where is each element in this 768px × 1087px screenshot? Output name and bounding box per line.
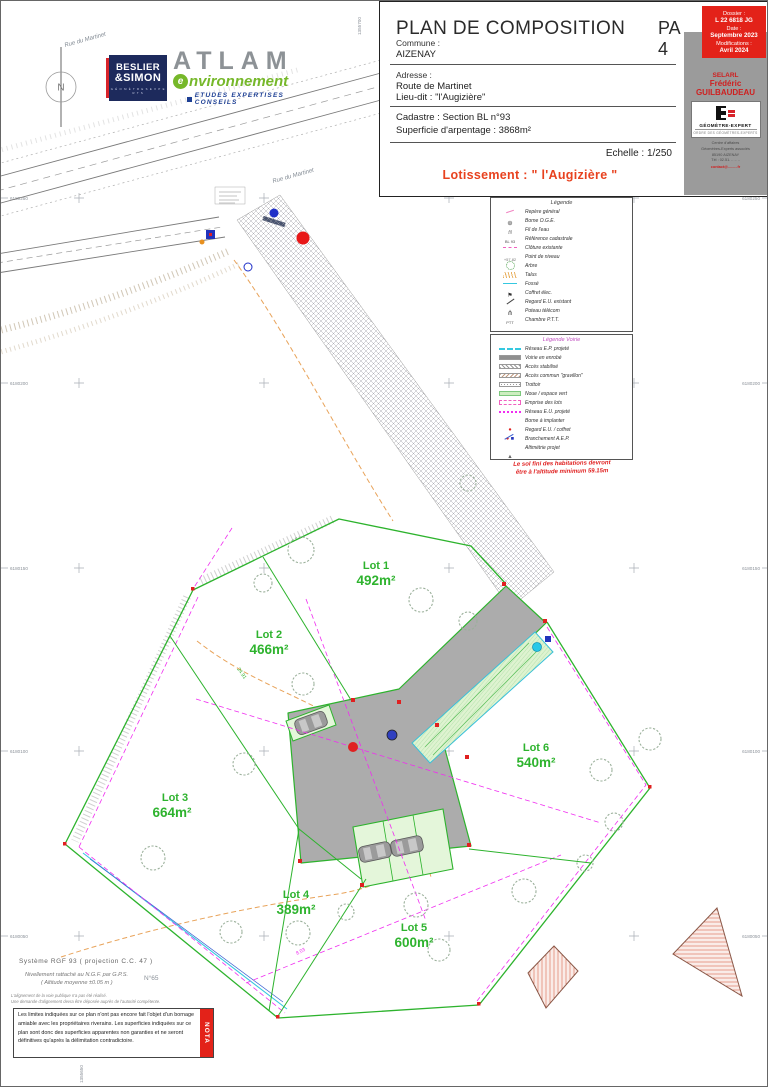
legend-item-label: Regard E.U. / coffret: [525, 427, 571, 433]
nota-band: NOTA: [200, 1009, 213, 1057]
tree-icon: [639, 728, 661, 750]
legend-item-label: Clôture existante: [525, 245, 563, 251]
legend-item-label: Réseau E.U. projeté: [525, 409, 570, 415]
measurement-label: 8.03: [295, 947, 307, 957]
legend-item: Regard E.U. / coffret: [491, 425, 632, 434]
legend-item-label: Référence cadastrale: [525, 236, 573, 242]
nota-label: NOTA: [203, 1022, 210, 1044]
tree-icon: [220, 921, 242, 943]
dossier-box: Dossier : L 22 6818 JG Date : Septembre …: [702, 6, 766, 58]
legend-item: Accès commun "gravillon": [491, 371, 632, 380]
leveling-note-detail: ( Altitude moyenne ±0.05 m ): [41, 980, 113, 986]
legend-item-label: Regard E.U. existant: [525, 299, 571, 305]
atlam-tagline: ETUDES EXPERTISES CONSEILS: [195, 92, 323, 106]
legend-swatch-icon: [499, 391, 521, 396]
legend-item: Référence cadastrale: [491, 234, 632, 243]
divider: [390, 106, 676, 107]
nota-box: Les limites indiquées sur ce plan n'ont …: [13, 1008, 214, 1058]
legend-item: Coffret élec.: [491, 288, 632, 297]
levels-table: [215, 187, 245, 204]
legend-item-label: Accès stabilisé: [525, 364, 558, 370]
superficie-value: Superficie d'arpentage : 3868m²: [396, 125, 531, 136]
lot-label: Lot 4: [283, 889, 310, 901]
nota-text: Les limites indiquées sur ce plan n'ont …: [14, 1009, 200, 1057]
legend-item-label: Voirie en enrobé: [525, 355, 562, 361]
legend-item-label: Trottoir: [525, 382, 540, 388]
svg-text:6180100: 6180100: [742, 749, 760, 754]
tree-icon: [286, 921, 310, 945]
lot-label: Lot 2: [256, 629, 282, 641]
legend-item-label: Noue / espace vert: [525, 391, 567, 397]
firm-name: Frédéric: [684, 79, 767, 88]
legend-item-label: Talus: [525, 272, 537, 278]
firm-name: SELARL: [684, 72, 767, 79]
commune-value: AIZENAY: [396, 49, 436, 60]
street-label: Rue du Martinet: [272, 168, 315, 185]
legend-swatch-icon: [508, 418, 511, 423]
tree-icon: [605, 813, 623, 831]
basin-symbol: [533, 643, 542, 652]
commune-label: Commune :: [396, 38, 440, 48]
legend-item-label: Borne O.G.E.: [525, 218, 555, 224]
svg-text:6180250: 6180250: [10, 196, 28, 201]
lot-area-label: 540m²: [516, 755, 556, 770]
tree-icon: [404, 893, 428, 917]
svg-text:6180200: 6180200: [10, 381, 28, 386]
lot-label: Lot 5: [401, 922, 427, 934]
lot-area-label: 492m²: [356, 573, 396, 588]
legend-title: Légende Voirie: [491, 337, 632, 343]
adresse-label: Adresse :: [396, 70, 432, 80]
divider: [390, 142, 676, 143]
legend-item-label: Borne à implanter: [525, 418, 564, 424]
lot-area-label: 600m²: [394, 935, 434, 950]
dossier-value: L 22 6818 JG: [702, 17, 766, 24]
atlam-square-icon: [187, 97, 192, 102]
road-blue-marker: [270, 209, 279, 218]
svg-text:6180100: 6180100: [10, 749, 28, 754]
legend-swatch-icon: [499, 348, 521, 350]
tree-icon: [141, 846, 165, 870]
legend-swatch-icon: [499, 364, 521, 369]
geometre-expert-label: GÉOMÈTRE-EXPERT: [695, 123, 757, 130]
legend-symbol-icon: [505, 230, 515, 248]
legend-item: Borne à implanter: [491, 416, 632, 425]
legend-symbol-icon: [506, 261, 515, 270]
geometre-expert-icon: [692, 105, 760, 121]
tree-icon: [338, 904, 354, 920]
firm-address-line: Tél : 02.51. .. .. ..: [684, 158, 767, 164]
legend-symbol-icon: [503, 272, 517, 278]
tree-icon: [254, 574, 272, 592]
well-marker: [387, 730, 397, 740]
legend-general: Légende Repère général Borne O.G.E. Fil …: [490, 197, 633, 332]
legend-swatch-icon: [499, 400, 521, 405]
beslier-logo-line2: &SIMON: [109, 72, 167, 84]
street-label: Rue du Martinet: [64, 32, 107, 49]
legend-item: Emprise des lots: [491, 398, 632, 407]
tree-icon: [590, 759, 612, 781]
geometre-expert-sub: ORDRE DES GÉOMÈTRES-EXPERTS: [692, 131, 760, 135]
atlam-logo: ATLAM e nvironnement ETUDES EXPERTISES C…: [173, 49, 323, 106]
page-title: PLAN DE COMPOSITION: [396, 18, 625, 40]
modifications-value: Avril 2024: [702, 47, 766, 54]
legend-item: Noue / espace vert: [491, 389, 632, 398]
legend-item-label: Arbre: [525, 263, 537, 269]
beslier-logo-sub: G É O M È T R E S E X P E R T S: [109, 87, 167, 95]
svg-text:N: N: [57, 83, 64, 94]
legend-item-label: Repère général: [525, 209, 559, 215]
lot-label: Lot 3: [162, 792, 188, 804]
divider: [390, 64, 676, 65]
date-value: Septembre 2023: [702, 32, 766, 39]
manhole-red-marker: [348, 742, 358, 752]
legend-item: Arbre: [491, 261, 632, 270]
tree-icon: [233, 753, 255, 775]
svg-text:6180200: 6180200: [742, 381, 760, 386]
legend-item-label: Coffret élec.: [525, 290, 552, 296]
utility-cabinet-icon: [206, 230, 215, 239]
water-network-lines: [83, 853, 287, 1009]
legend-item-label: Branchement A.E.P.: [525, 436, 569, 442]
measurement-label: 24.91: [235, 667, 247, 681]
legend-item-label: Emprise des lots: [525, 400, 562, 406]
legend-item: Accès stabilisé: [491, 362, 632, 371]
tree-icon: [288, 537, 314, 563]
svg-text:6180050: 6180050: [10, 934, 28, 939]
lot-label: Lot 1: [363, 560, 389, 572]
talus-hatching: [75, 519, 333, 841]
grid-label-top: 1355700: [357, 17, 362, 35]
legend-item-label: Accès commun "gravillon": [525, 373, 583, 379]
grid-label-right: 6180250 6180200 6180150 6180100 6180050: [742, 196, 768, 939]
svg-text:6180050: 6180050: [742, 934, 760, 939]
grid-label-bottom: 1355650: [79, 1065, 84, 1083]
firm-address: Centre d'affairesGéomètres-Experts assoc…: [684, 141, 767, 164]
road-red-marker: [297, 232, 310, 245]
coordinate-system-note: Système RGF 93 ( projection C.C. 47 ): [19, 958, 153, 965]
legend-item: Réseau E.P. projeté: [491, 344, 632, 353]
beslier-simon-logo: BESLIER &SIMON G É O M È T R E S E X P E…: [109, 55, 167, 101]
legend-swatch-icon: [499, 411, 521, 413]
north-arrow-icon: N: [46, 47, 76, 127]
atlam-logo-sub: nvironnement: [189, 73, 288, 90]
legend-item: Chambre P.T.T.: [491, 315, 632, 324]
altitude-note: Le sol fini des habitations devront être…: [488, 460, 636, 478]
atlam-logo-name: ATLAM: [173, 49, 323, 74]
legend-item-label: Altimétrie projet: [525, 445, 560, 451]
orange-marker: [200, 240, 205, 245]
svg-text:6180150: 6180150: [742, 566, 760, 571]
leveling-note: Nivellement rattaché au N.G.F. par G.P.S…: [25, 972, 128, 978]
lot-label: Lot 6: [523, 742, 549, 754]
svg-text:6180150: 6180150: [10, 566, 28, 571]
legend-swatch-icon: [499, 355, 521, 360]
legend-voirie: Légende Voirie Réseau E.P. projeté Voiri…: [490, 334, 633, 460]
title-block: PLAN DE COMPOSITION PA 4 Commune : AIZEN…: [379, 1, 768, 197]
legend-item-label: Chambre P.T.T.: [525, 317, 559, 323]
tree-icon: [409, 588, 433, 612]
legend-item: Réseau E.U. projeté: [491, 407, 632, 416]
lot-area-label: 664m²: [152, 805, 192, 820]
legend-item-label: Point de niveau: [525, 254, 559, 260]
neighbour-buildings: [528, 908, 742, 1008]
tree-icon: [292, 673, 314, 695]
cadastre-value: Cadastre : Section BL n°93: [396, 112, 510, 123]
legend-item: Trottoir: [491, 380, 632, 389]
lotissement-title: Lotissement : " l'Augizière ": [380, 168, 680, 182]
alignment-note-line2: Une demande d'alignement devra être dépo…: [11, 999, 160, 1005]
plan-sheet: 6180250 6180200 6180150 6180100 6180050 …: [0, 0, 768, 1087]
alignment-note: L'alignement de la voie publique n'a pas…: [11, 993, 160, 1006]
legend-item: Talus: [491, 270, 632, 279]
legend-item-label: Réseau E.P. projeté: [525, 346, 569, 352]
legend-swatch-icon: [507, 445, 512, 450]
legend-swatch-icon: [499, 382, 521, 387]
grid-label-left: 6180250 6180200 6180150 6180100 6180050: [1, 196, 28, 939]
building-hatched: [528, 946, 578, 1008]
tree-icon: [512, 879, 536, 903]
firm-email: contact@.........fr: [684, 165, 767, 169]
adresse-line2: Lieu-dit : "l'Augizière": [396, 92, 485, 103]
building-hatched: [673, 908, 742, 996]
sheet-code: PA 4: [658, 18, 682, 60]
legend-symbol-icon: [506, 311, 514, 329]
legend-item-label: Poteau télécom: [525, 308, 560, 314]
legend-item: Point de niveau: [491, 252, 632, 261]
legend-swatch-icon: [506, 427, 514, 432]
geometre-expert-logo: GÉOMÈTRE-EXPERT ORDRE DES GÉOMÈTRES-EXPE…: [691, 101, 761, 138]
legend-title: Légende: [491, 200, 632, 206]
cabinet-icon: [545, 636, 551, 642]
legend-item-label: Fossé: [525, 281, 539, 287]
lot-area-label: 466m²: [249, 642, 289, 657]
adresse-line1: Route de Martinet: [396, 81, 472, 92]
parcel-number-label: N°65: [144, 975, 159, 982]
firm-name: GUILBAUDEAU: [684, 88, 767, 97]
lot-area-label: 389m²: [276, 902, 316, 917]
legend-item-label: Fil de l'eau: [525, 227, 549, 233]
legend-item: Voirie en enrobé: [491, 353, 632, 362]
legend-swatch-icon: [499, 373, 521, 378]
blue-ring-marker: [244, 263, 252, 271]
legend-item: Altimétrie projet: [491, 443, 632, 452]
echelle-value: Echelle : 1/250: [606, 148, 672, 159]
atlam-e-icon: e: [173, 74, 188, 89]
